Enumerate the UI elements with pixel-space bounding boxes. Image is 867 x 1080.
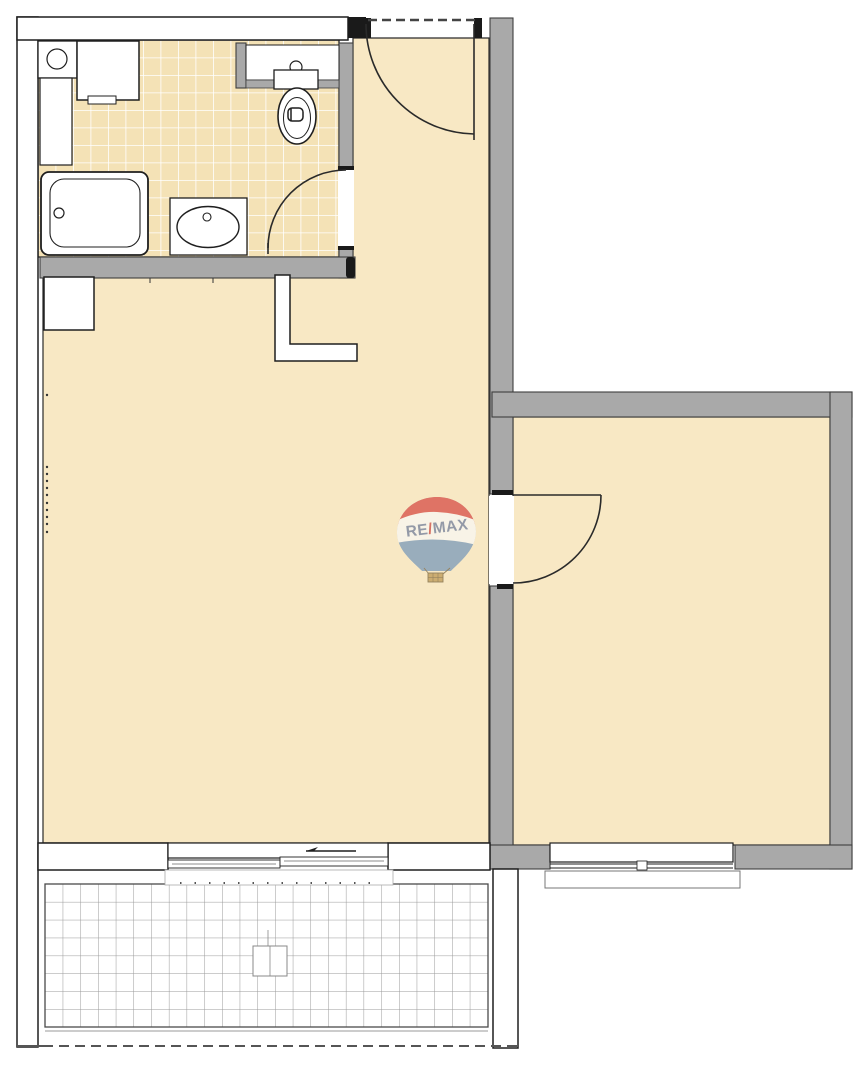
- vanity-sink: [170, 198, 247, 255]
- right-room-door-opening: [489, 496, 514, 584]
- balcony-wall-left-stub: [38, 843, 168, 870]
- toilet-niche-left-post: [236, 43, 246, 88]
- closet-block: [44, 277, 94, 330]
- corner-washbasin: [38, 41, 77, 78]
- central-wall-lower: [490, 586, 513, 869]
- bathtub: [41, 172, 148, 255]
- balcony-right-wall: [493, 869, 518, 1048]
- bathroom-door-opening: [338, 170, 354, 246]
- floor-plan-page: RE/MAX: [0, 0, 867, 1080]
- top-exterior-wall: [17, 17, 348, 40]
- entrance-opening: [364, 18, 482, 38]
- bathroom-bottom-wall: [40, 257, 355, 278]
- balcony-sliding-door: [165, 843, 393, 885]
- right-room-top-wall: [492, 392, 852, 417]
- window-center-mullion: [637, 861, 647, 870]
- toilet-niche-ledge-right: [317, 80, 339, 88]
- right-room-bottom-wall-left: [490, 845, 550, 869]
- right-room-window: [545, 843, 740, 888]
- bathroom-cabinet: [40, 78, 72, 165]
- balcony-threshold: [165, 870, 393, 885]
- bathroom-bottom-wall-cap: [346, 257, 355, 278]
- window-sill: [545, 871, 740, 888]
- right-room-bottom-wall-right: [735, 845, 852, 869]
- balcony-wall-right-stub: [388, 843, 490, 870]
- left-exterior-wall: [17, 17, 38, 1047]
- bathroom-right-wall-upper: [339, 43, 353, 169]
- toilet-cistern: [274, 70, 318, 89]
- washing-machine: [77, 41, 139, 104]
- floor-plan-drawing: RE/MAX: [0, 0, 867, 1080]
- bathroom-door-jamb-bottom: [338, 246, 354, 250]
- sliding-panel-right: [280, 857, 388, 866]
- right-room-floor: [513, 417, 830, 845]
- door-jamb-top: [492, 490, 513, 495]
- central-wall-upper: [490, 18, 513, 494]
- top-wall-end-cap: [348, 17, 366, 38]
- door-jamb-bottom: [497, 584, 513, 589]
- right-room-right-wall: [830, 392, 852, 869]
- entrance-right-post: [474, 18, 482, 38]
- toilet-niche-ledge-left: [246, 80, 275, 88]
